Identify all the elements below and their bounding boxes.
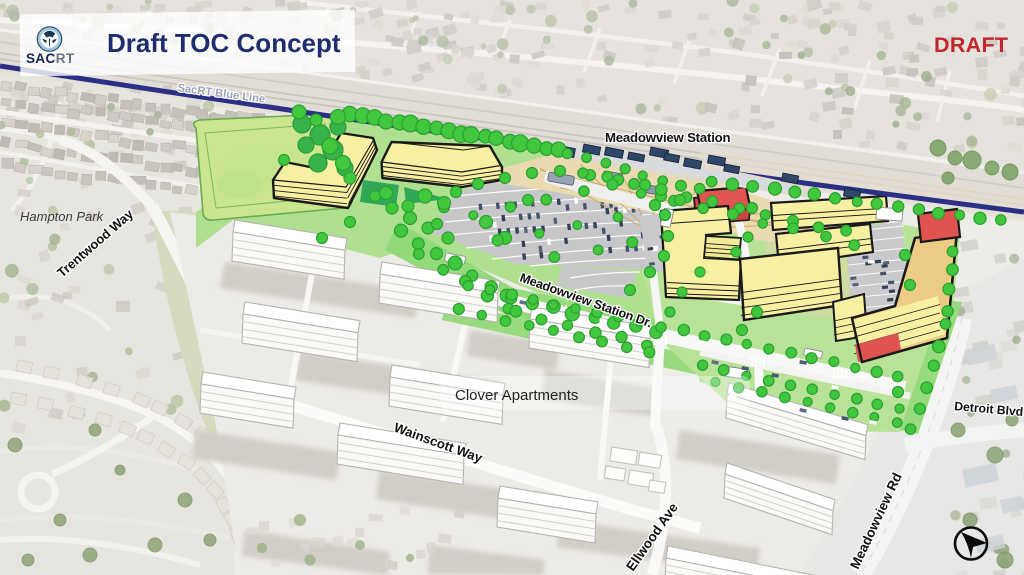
svg-text:DRAFT: DRAFT [934,33,1008,57]
svg-text:Hampton Park: Hampton Park [20,209,105,224]
svg-text:Meadowview Station: Meadowview Station [605,130,731,145]
svg-text:Draft TOC Concept: Draft TOC Concept [107,28,341,58]
svg-text:Clover Apartments: Clover Apartments [455,387,578,404]
svg-text:SACRT: SACRT [26,51,75,66]
